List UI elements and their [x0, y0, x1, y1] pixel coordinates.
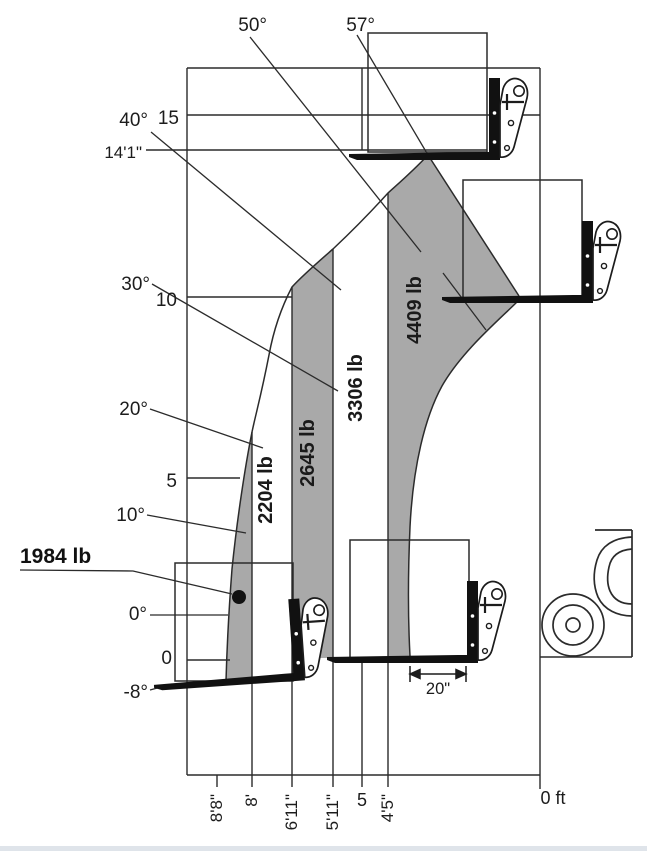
fork-position-max-height	[349, 78, 528, 160]
height-tick-15: 15	[158, 108, 179, 129]
leader-40	[151, 132, 341, 290]
wheel-rim	[553, 605, 593, 645]
angle-label-30: 30°	[121, 274, 150, 295]
reach-axis-labels: 8'8" 8' 6'11" 5'11" 5 4'5" 0 ft	[207, 788, 566, 830]
angle-label-40: 40°	[119, 110, 148, 131]
angle-label-50: 50°	[238, 15, 267, 36]
reach-label-4ft5: 4'5"	[378, 794, 397, 822]
leader-50a	[250, 37, 421, 252]
capacity-label-1984: 1984 lb	[20, 545, 91, 568]
wheel-tire	[542, 594, 604, 656]
height-tick-5: 5	[166, 471, 177, 492]
capacity-label-4409: 4409 lb	[404, 276, 426, 344]
reach-label-6ft11: 6'11"	[282, 794, 301, 830]
angle-label-57: 57°	[346, 15, 375, 36]
capacity-label-2645: 2645 lb	[297, 419, 319, 487]
capacity-label-2204: 2204 lb	[255, 456, 277, 524]
load-box-top	[368, 33, 487, 152]
angle-label-0: 0°	[129, 604, 147, 625]
capacity-label-3306: 3306 lb	[345, 354, 367, 422]
angle-label-20: 20°	[119, 399, 148, 420]
zone-4409	[388, 155, 519, 656]
fender-inner	[608, 549, 632, 604]
height-axis-labels: 15 10 5 0 14'1"	[104, 108, 179, 669]
capacity-zone-labels: 1984 lb 2204 lb 2645 lb 3306 lb 4409 lb	[20, 276, 426, 568]
machine-outline	[542, 530, 632, 657]
load-chart-page: 57° 50° 40° 30° 20° 10° 0° -8° 15 10 5 0…	[0, 0, 647, 851]
reach-label-8ft8: 8'8"	[207, 794, 226, 822]
height-tick-0: 0	[161, 648, 172, 669]
wheel-hub	[566, 618, 580, 632]
leader-20	[150, 409, 263, 448]
height-tick-10: 10	[156, 290, 177, 311]
rated-point-dot	[232, 590, 246, 604]
telehandler-load-chart: 57° 50° 40° 30° 20° 10° 0° -8° 15 10 5 0…	[0, 0, 647, 851]
angle-label-neg8: -8°	[124, 682, 149, 703]
angle-label-10: 10°	[116, 505, 145, 526]
reach-label-5: 5	[357, 790, 367, 810]
reach-label-5ft11: 5'11"	[323, 794, 342, 830]
max-height-label: 14'1"	[104, 143, 142, 162]
leader-1984	[20, 570, 232, 594]
zone-1984	[226, 432, 252, 681]
load-center-label: 20"	[426, 680, 450, 698]
leader-10	[147, 515, 246, 533]
fork-position-ground-retracted	[327, 581, 506, 663]
reach-label-0ft: 0 ft	[540, 788, 565, 808]
reach-label-8ft: 8'	[242, 794, 261, 807]
page-edge-strip	[0, 846, 647, 851]
